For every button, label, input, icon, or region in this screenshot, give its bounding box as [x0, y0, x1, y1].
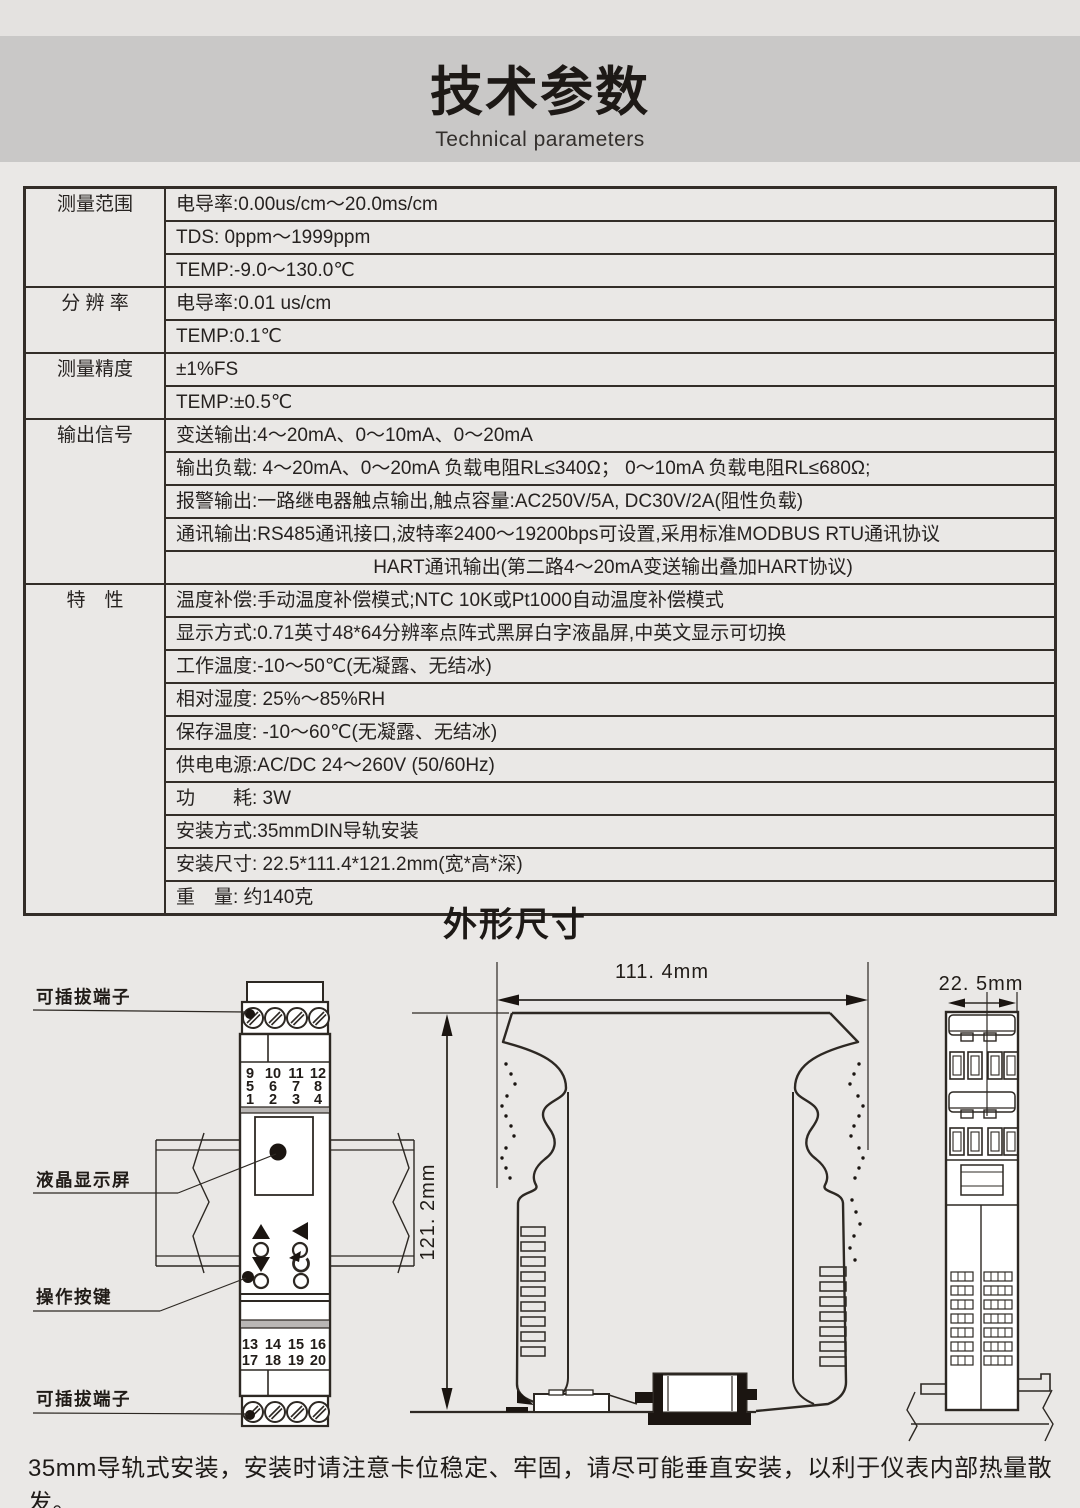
- spec-value: 保存温度: -10～60℃(无凝露、无结冰): [165, 716, 1056, 749]
- label-buttons: 操作按键: [36, 1287, 112, 1307]
- spec-category: 测量精度: [25, 353, 166, 419]
- table-row: 输出信号 变送输出:4～20mA、0～10mA、0～20mA: [25, 419, 1056, 452]
- page-subtitle: Technical parameters: [0, 128, 1080, 152]
- spec-value: ±1%FS: [165, 353, 1056, 386]
- hidden-edge-dots: [500, 1062, 864, 1261]
- screw-terminal-icon: [309, 1402, 329, 1422]
- spec-value: TDS: 0ppm～1999ppm: [165, 221, 1056, 254]
- spec-value: 显示方式:0.71英寸48*64分辨率点阵式黑屏白字液晶屏,中英文显示可切换: [165, 617, 1056, 650]
- front-view-drawing: 9 10 11 12 5 6 7 8 1 2 3 4: [33, 982, 414, 1426]
- height-dimension-label: 121. 2mm: [417, 1164, 439, 1261]
- down-button: [254, 1274, 268, 1288]
- terminal-number: 2: [269, 1092, 277, 1108]
- spec-value: 工作温度:-10～50℃(无凝露、无结冰): [165, 650, 1056, 683]
- top-cap: [247, 982, 323, 1002]
- table-row: 安装尺寸: 22.5*111.4*121.2mm(宽*高*深): [25, 848, 1056, 881]
- label-top-terminal: 可插拔端子: [36, 987, 131, 1007]
- spec-value: 安装方式:35mmDIN导轨安装: [165, 815, 1056, 848]
- spec-value: 功 耗: 3W: [165, 782, 1056, 815]
- table-row: 测量范围 电导率:0.00us/cm～20.0ms/cm: [25, 188, 1056, 222]
- spec-value: 电导率:0.00us/cm～20.0ms/cm: [165, 188, 1056, 222]
- din-rail-left: [156, 1133, 240, 1273]
- din-clip: [648, 1374, 757, 1425]
- spec-value: 安装尺寸: 22.5*111.4*121.2mm(宽*高*深): [165, 848, 1056, 881]
- table-row: 测量精度 ±1%FS: [25, 353, 1056, 386]
- terminal-number: 1: [246, 1092, 254, 1108]
- dimension-drawings: 9 10 11 12 5 6 7 8 1 2 3 4: [0, 940, 1080, 1450]
- terminal-number: 4: [314, 1092, 322, 1108]
- width-dimension-label: 111. 4mm: [615, 961, 709, 983]
- section-title-dimensions: 外形尺寸: [0, 897, 1030, 946]
- spec-category: 特 性: [25, 584, 166, 915]
- vent-slots-right: [820, 1267, 846, 1366]
- table-row: 特 性 温度补偿:手动温度补偿模式;NTC 10K或Pt1000自动温度补偿模式: [25, 584, 1056, 617]
- leader-dot: [270, 1144, 287, 1161]
- rail-tab-left: [921, 1384, 946, 1394]
- terminal-number: 16: [310, 1337, 326, 1353]
- terminal-number: 17: [242, 1353, 258, 1369]
- leader-dot: [245, 1009, 255, 1019]
- terminal-number: 18: [265, 1353, 281, 1369]
- enter-button: [294, 1274, 308, 1288]
- table-row: 分 辨 率 电导率:0.01 us/cm: [25, 287, 1056, 320]
- table-row: 报警输出:一路继电器触点输出,触点容量:AC250V/5A, DC30V/2A(…: [25, 485, 1056, 518]
- table-row: 相对湿度: 25%～85%RH: [25, 683, 1056, 716]
- table-row: 安装方式:35mmDIN导轨安装: [25, 815, 1056, 848]
- profile-left-edge: [503, 1013, 566, 1407]
- table-row: 功 耗: 3W: [25, 782, 1056, 815]
- table-row: TDS: 0ppm～1999ppm: [25, 221, 1056, 254]
- label-lcd: 液晶显示屏: [36, 1170, 131, 1190]
- rail-clamp: [534, 1394, 609, 1412]
- title-band: 技术参数 Technical parameters: [0, 36, 1080, 162]
- top-strip: [0, 0, 1080, 36]
- label-bottom-terminal: 可插拔端子: [36, 1389, 131, 1409]
- table-row: 工作温度:-10～50℃(无凝露、无结冰): [25, 650, 1056, 683]
- spec-value: TEMP:0.1℃: [165, 320, 1056, 353]
- up-button: [254, 1243, 268, 1257]
- vent-slots-left: [521, 1227, 545, 1356]
- break-line-left: [907, 1392, 917, 1441]
- spec-value: 变送输出:4～20mA、0～10mA、0～20mA: [165, 419, 1056, 452]
- table-row: 保存温度: -10～60℃(无凝露、无结冰): [25, 716, 1056, 749]
- spec-value: HART通讯输出(第二路4～20mA变送输出叠加HART协议): [165, 551, 1056, 584]
- spec-value: 输出负载: 4～20mA、0～20mA 负载电阻RL≤340Ω； 0～10mA …: [165, 452, 1056, 485]
- table-row: 通讯输出:RS485通讯接口,波特率2400～19200bps可设置,采用标准M…: [25, 518, 1056, 551]
- spec-category: 分 辨 率: [25, 287, 166, 353]
- spec-value: TEMP:±0.5℃: [165, 386, 1056, 419]
- spec-table: 测量范围 电导率:0.00us/cm～20.0ms/cm TDS: 0ppm～1…: [23, 186, 1057, 916]
- terminal-number: 3: [292, 1092, 300, 1108]
- table-row: TEMP:±0.5℃: [25, 386, 1056, 419]
- profile-left-inner: [547, 1092, 568, 1404]
- rail-tab-right: [1018, 1374, 1050, 1391]
- terminal-number: 15: [288, 1337, 304, 1353]
- table-row: TEMP:0.1℃: [25, 320, 1056, 353]
- page-title: 技术参数: [0, 50, 1080, 126]
- spec-value: 温度补偿:手动温度补偿模式;NTC 10K或Pt1000自动温度补偿模式: [165, 584, 1056, 617]
- break-line-right: [1043, 1390, 1053, 1441]
- screw-terminal-icon: [265, 1402, 285, 1422]
- mounting-note: 35mm导轨式安装，安装时请注意卡位稳定、牢固，请尽可能垂直安装，以利于仪表内部…: [28, 1448, 1058, 1508]
- terminal-number: 20: [310, 1353, 326, 1369]
- spec-value: 相对湿度: 25%～85%RH: [165, 683, 1056, 716]
- spec-value: 报警输出:一路继电器触点输出,触点容量:AC250V/5A, DC30V/2A(…: [165, 485, 1056, 518]
- spec-category: 测量范围: [25, 188, 166, 288]
- din-rail-right: [330, 1133, 414, 1273]
- screw-terminal-icon: [309, 1008, 329, 1028]
- spec-value: 供电电源:AC/DC 24～260V (50/60Hz): [165, 749, 1056, 782]
- table-row: 输出负载: 4～20mA、0～20mA 负载电阻RL≤340Ω； 0～10mA …: [25, 452, 1056, 485]
- table-row: 供电电源:AC/DC 24～260V (50/60Hz): [25, 749, 1056, 782]
- screw-terminal-icon: [265, 1008, 285, 1028]
- terminal-number: 13: [242, 1337, 258, 1353]
- end-view-drawing: 22. 5mm: [907, 973, 1053, 1441]
- side-view-drawing: 111. 4mm 121. 2mm: [410, 961, 868, 1425]
- table-row: HART通讯输出(第二路4～20mA变送输出叠加HART协议): [25, 551, 1056, 584]
- table-row: TEMP:-9.0～130.0℃: [25, 254, 1056, 287]
- screw-terminal-icon: [287, 1008, 307, 1028]
- profile-right-inner: [793, 1092, 814, 1404]
- spec-sheet-page: 技术参数 Technical parameters 测量范围 电导率:0.00u…: [0, 0, 1080, 1508]
- spec-value: 通讯输出:RS485通讯接口,波特率2400～19200bps可设置,采用标准M…: [165, 518, 1056, 551]
- terminal-number: 14: [265, 1337, 281, 1353]
- spec-category: 输出信号: [25, 419, 166, 584]
- leader-dot: [242, 1271, 254, 1283]
- spec-value: 电导率:0.01 us/cm: [165, 287, 1056, 320]
- table-row: 显示方式:0.71英寸48*64分辨率点阵式黑屏白字液晶屏,中英文显示可切换: [25, 617, 1056, 650]
- spec-value: TEMP:-9.0～130.0℃: [165, 254, 1056, 287]
- depth-dimension-label: 22. 5mm: [939, 973, 1024, 995]
- screw-terminal-icon: [287, 1402, 307, 1422]
- terminal-number: 19: [288, 1353, 304, 1369]
- leader-dot: [245, 1410, 255, 1420]
